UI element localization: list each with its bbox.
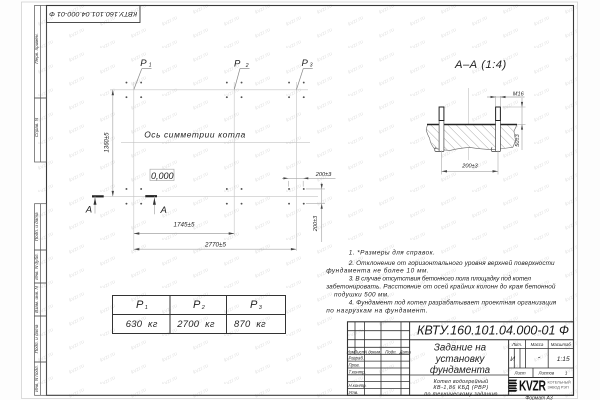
svg-text:1: 1	[149, 63, 152, 69]
svg-text:фундамента не более 10 мм.: фундамента не более 10 мм.	[326, 267, 429, 275]
svg-text:Подп.: Подп.	[385, 349, 396, 354]
svg-text:P: P	[302, 58, 309, 69]
svg-text:P: P	[140, 58, 147, 69]
svg-text:Т.контр.: Т.контр.	[349, 369, 366, 374]
svg-text:М16: М16	[513, 91, 525, 97]
svg-text:3. В случае отсутствия бетонно: 3. В случае отсутствия бетонного пола пл…	[349, 275, 532, 283]
svg-text:2770±5: 2770±5	[204, 242, 226, 249]
svg-text:4. Фундамент под котел разраба: 4. Фундамент под котел разрабатывает про…	[349, 298, 557, 306]
svg-text:2. Отклонение от горизонтально: 2. Отклонение от горизонтального уровня …	[348, 259, 555, 267]
svg-text:2700 кг: 2700 кг	[176, 318, 215, 329]
svg-text:по нагрузкам на фундамент.: по нагрузкам на фундамент.	[326, 306, 428, 314]
svg-text:2: 2	[245, 63, 249, 69]
svg-text:3: 3	[310, 63, 313, 69]
svg-text:200±3: 200±3	[461, 163, 478, 169]
svg-text:A: A	[85, 205, 92, 216]
svg-text:фундамента: фундамента	[430, 365, 491, 376]
svg-text:A: A	[160, 205, 167, 216]
svg-text:1745±5: 1745±5	[174, 221, 195, 228]
svg-text:1:15: 1:15	[557, 356, 570, 363]
svg-text:КВ-1,86 КБД (РВР): КВ-1,86 КБД (РВР)	[433, 385, 488, 391]
svg-text:забетонировать. Расстояние от: забетонировать. Расстояние от осей крайн…	[325, 283, 556, 291]
svg-text:Дата: Дата	[399, 349, 412, 354]
svg-text:200±3: 200±3	[313, 215, 319, 232]
svg-text:по техническому заданию: по техническому заданию	[424, 391, 498, 397]
svg-text:Формат А3: Формат А3	[525, 395, 553, 400]
svg-text:870 кг: 870 кг	[234, 318, 266, 329]
svg-text:0,000: 0,000	[151, 171, 174, 181]
svg-text:КВТУ.160.101.04.000-01 Ф: КВТУ.160.101.04.000-01 Ф	[49, 10, 138, 17]
svg-text:KVZR: KVZR	[519, 379, 546, 395]
svg-text:1360±5: 1360±5	[104, 132, 110, 153]
svg-text:N докум.: N докум.	[364, 349, 381, 354]
svg-text:P: P	[234, 59, 241, 70]
svg-text:ЗАВОД РЭП: ЗАВОД РЭП	[548, 385, 569, 389]
svg-text:Перв. примен.: Перв. примен.	[34, 33, 39, 64]
svg-text:КОТЕЛЬНЫЙ: КОТЕЛЬНЫЙ	[548, 380, 571, 384]
svg-text:Масса: Масса	[531, 342, 544, 347]
svg-text:Лит.: Лит.	[511, 342, 522, 347]
svg-text:Ось симметрии котла: Ось симметрии котла	[144, 129, 246, 139]
svg-text:И: И	[510, 356, 515, 363]
svg-text:200±3: 200±3	[315, 172, 332, 178]
svg-text:Утв.: Утв.	[349, 390, 359, 395]
svg-text:Подп. и дата: Подп. и дата	[34, 324, 39, 353]
svg-text:Масштаб: Масштаб	[551, 342, 572, 347]
svg-text:Подп. и дата: Подп. и дата	[34, 212, 39, 241]
svg-text:Задание на: Задание на	[434, 342, 487, 353]
svg-text:Инв. N подл.: Инв. N подл.	[34, 365, 39, 392]
svg-text:50±3: 50±3	[515, 133, 521, 146]
svg-text:Взам. инв. N: Взам. инв. N	[34, 285, 39, 312]
svg-text:Н.контр.: Н.контр.	[349, 383, 367, 388]
svg-text:630 кг: 630 кг	[126, 318, 158, 329]
svg-text:установку: установку	[435, 354, 486, 365]
svg-text:А–А (1:4): А–А (1:4)	[454, 59, 507, 71]
svg-text:Инв. N дубл.: Инв. N дубл.	[34, 253, 39, 280]
svg-text:P: P	[250, 299, 258, 311]
svg-text:2: 2	[201, 305, 205, 311]
svg-text:Котел водогрейный: Котел водогрейный	[434, 378, 489, 385]
svg-text:КВТУ.160.101.04.000-01 Ф: КВТУ.160.101.04.000-01 Ф	[417, 322, 569, 337]
svg-text:P: P	[193, 299, 201, 311]
svg-text:подушки 500 мм.: подушки 500 мм.	[334, 291, 390, 299]
svg-text:Листов: Листов	[538, 371, 555, 376]
svg-text:Лист: Лист	[514, 371, 526, 376]
svg-text:1. *Размеры для справок.: 1. *Размеры для справок.	[349, 248, 436, 256]
svg-text:P: P	[136, 299, 144, 311]
svg-text:Пров.: Пров.	[349, 363, 360, 368]
svg-text:Разраб.: Разраб.	[349, 356, 365, 361]
svg-text:1: 1	[145, 305, 148, 311]
svg-text:Справ. N: Справ. N	[34, 117, 39, 137]
